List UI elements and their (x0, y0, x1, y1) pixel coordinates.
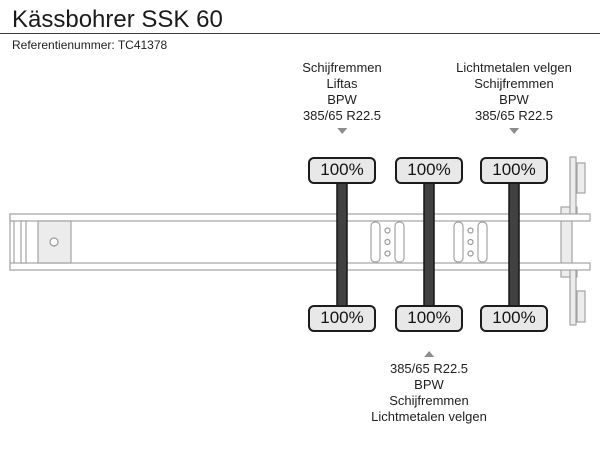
chassis-bottom-rail (10, 263, 590, 270)
axle2-spec-label: 385/65 R22.5 BPW Schijfremmen Lichtmetal… (371, 351, 487, 425)
tread-depth-badge-axle3-top: 100% (480, 157, 548, 184)
tread-depth-badge-axle2-bottom: 100% (395, 305, 463, 332)
rear-bumper-assembly (561, 157, 585, 325)
bolt-hole (468, 251, 473, 256)
cross-member (454, 222, 487, 262)
tire-axle-2 (424, 180, 434, 309)
tail-light-bottom (577, 291, 585, 322)
bolt-hole (468, 240, 473, 245)
tread-depth-badge-axle1-top: 100% (308, 157, 376, 184)
tire-axle-1 (337, 180, 347, 309)
trailer-diagram-page: Kässbohrer SSK 60 Referentienummer: TC41… (0, 0, 600, 450)
cross-member-bracket (478, 222, 487, 262)
spec-line: BPW (371, 377, 487, 393)
front-assembly (21, 221, 71, 263)
tread-depth-badge-axle1-bottom: 100% (308, 305, 376, 332)
trailer-chassis-drawing (0, 0, 600, 450)
spec-line: Lichtmetalen velgen (371, 409, 487, 425)
cross-member-bracket (371, 222, 380, 262)
rear-post-top (570, 157, 576, 215)
tread-depth-badge-axle2-top: 100% (395, 157, 463, 184)
cross-member-bracket (395, 222, 404, 262)
rear-cross-column (561, 220, 572, 264)
tread-depth-badge-axle3-bottom: 100% (480, 305, 548, 332)
bolt-hole (385, 240, 390, 245)
rear-post-bottom (570, 269, 576, 325)
tail-light-top (577, 163, 585, 193)
bolt-hole (468, 228, 473, 233)
front-cross-member (21, 221, 26, 263)
spec-line: 385/65 R22.5 (371, 361, 487, 377)
cross-member (371, 222, 404, 262)
cross-member-bracket (454, 222, 463, 262)
bolt-hole (385, 228, 390, 233)
kingpin (50, 238, 58, 246)
chassis-top-rail (10, 214, 590, 221)
tire-axle-3 (509, 180, 519, 309)
front-end-cap (10, 214, 14, 270)
spec-line: Schijfremmen (371, 393, 487, 409)
bolt-hole (385, 251, 390, 256)
arrow-up-icon (424, 351, 434, 357)
